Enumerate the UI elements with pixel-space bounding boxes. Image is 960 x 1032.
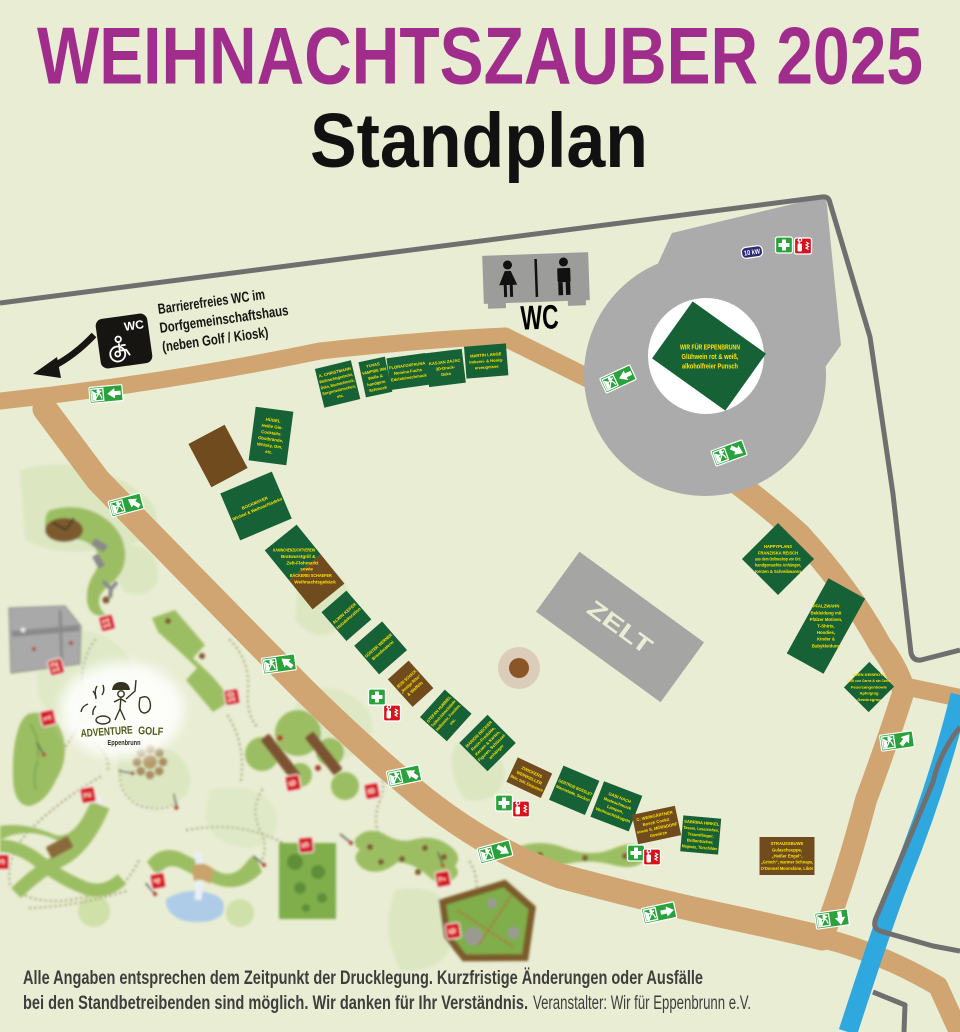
svg-text:FRANZISKA REISCH: FRANZISKA REISCH bbox=[758, 550, 798, 555]
svg-text:Bekleidung mit: Bekleidung mit bbox=[811, 610, 842, 615]
svg-text:bei den Standbetreibenden sind: bei den Standbetreibenden sind möglich. … bbox=[23, 993, 751, 1014]
svg-text:Kinder &: Kinder & bbox=[817, 637, 835, 642]
svg-text:Glühwein rot & weiß,: Glühwein rot & weiß, bbox=[682, 354, 739, 361]
svg-text:O’Donnel Moonshine, Likör: O’Donnel Moonshine, Likör bbox=[761, 866, 814, 871]
svg-text:HAPPYPLANS: HAPPYPLANS bbox=[764, 544, 792, 549]
svg-text:SVEN DEISROTH: SVEN DEISROTH bbox=[853, 672, 886, 677]
svg-text:Alle Angaben entsprechen dem Z: Alle Angaben entsprechen dem Zeitpunkt d… bbox=[23, 968, 703, 989]
svg-text:STRAUSSBUWE: STRAUSSBUWE bbox=[771, 841, 804, 846]
svg-text:Weihnachtsgebäck: Weihnachtsgebäck bbox=[294, 580, 336, 585]
svg-text:Chili con Carne & sin Carne: Chili con Carne & sin Carne bbox=[847, 678, 892, 683]
svg-text:alkoholfreier Punsch: alkoholfreier Punsch bbox=[682, 364, 738, 371]
svg-text:Gulaschsuppe,: Gulaschsuppe, bbox=[772, 847, 802, 852]
svg-text:Eppenbrunn: Eppenbrunn bbox=[108, 738, 141, 747]
svg-text:WEIHNACHTSZAUBER 2025: WEIHNACHTSZAUBER 2025 bbox=[37, 12, 923, 102]
svg-text:3: 3 bbox=[0, 859, 8, 865]
svg-text:handgemachte Anhänger,: handgemachte Anhänger, bbox=[755, 563, 801, 568]
svg-text:Standplan: Standplan bbox=[310, 98, 648, 184]
svg-text:GOLF: GOLF bbox=[138, 725, 164, 738]
svg-text:WC: WC bbox=[520, 298, 559, 337]
svg-text:sowie: sowie bbox=[300, 567, 313, 572]
svg-text:aus dem Onlineshop vor Ort:: aus dem Onlineshop vor Ort: bbox=[755, 556, 801, 561]
svg-text:Apfelgrog: Apfelgrog bbox=[860, 691, 879, 696]
svg-text:„Heißer Engel“,: „Heißer Engel“, bbox=[772, 853, 803, 858]
svg-text:BÄCKEREI SCHAEFER: BÄCKEREI SCHAEFER bbox=[290, 572, 333, 578]
svg-text:Bratwurstgrill &: Bratwurstgrill & bbox=[281, 554, 316, 559]
svg-text:KANINCHENZUCHTVEREIN: KANINCHENZUCHTVEREIN bbox=[273, 548, 315, 553]
svg-text:Zelt-Flohmarkt: Zelt-Flohmarkt bbox=[286, 560, 318, 565]
svg-text:T-Shirts,: T-Shirts, bbox=[817, 624, 834, 629]
svg-text:Babykleidung: Babykleidung bbox=[812, 643, 841, 648]
svg-text:Hoodies,: Hoodies, bbox=[817, 630, 835, 635]
svg-text:etc.: etc. bbox=[265, 449, 273, 455]
svg-text:„Grinch“, warmer Schnaps,: „Grinch“, warmer Schnaps, bbox=[761, 860, 814, 865]
svg-text:Kerzen & Schreibwaren: Kerzen & Schreibwaren bbox=[755, 569, 801, 574]
svg-text:WIR FÜR EPPENBRUNN: WIR FÜR EPPENBRUNN bbox=[680, 343, 740, 352]
svg-text:Feuerzangenbowle: Feuerzangenbowle bbox=[851, 684, 888, 689]
svg-text:Gewürzgrog: Gewürzgrog bbox=[857, 697, 881, 702]
svg-text:PFALZWAHN: PFALZWAHN bbox=[813, 604, 840, 609]
svg-text:Pfälzer Motiven,: Pfälzer Motiven, bbox=[810, 617, 843, 622]
svg-text:WC: WC bbox=[123, 317, 145, 334]
